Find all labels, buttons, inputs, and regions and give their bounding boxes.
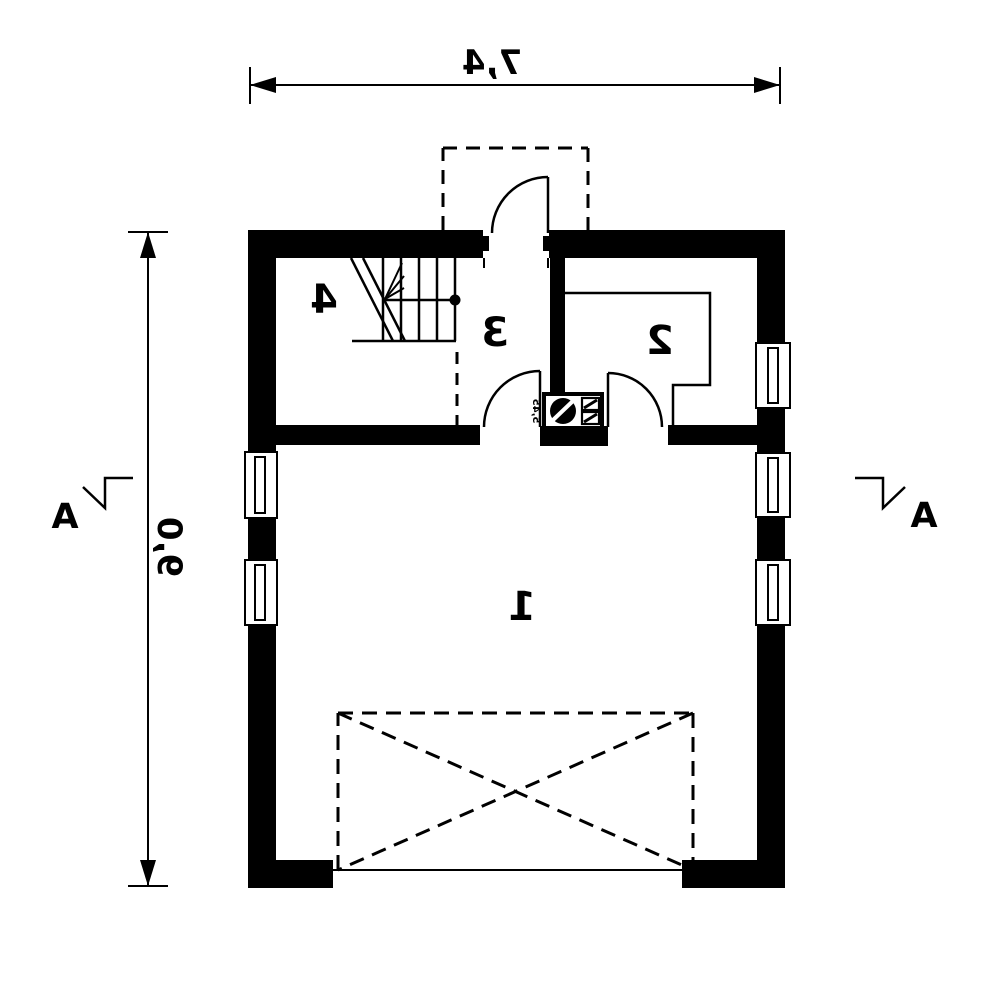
door-jamb	[483, 236, 489, 251]
porch-dashed-outline	[443, 148, 588, 230]
section-cut-mark	[855, 478, 905, 508]
stove-icon: 5,45	[530, 394, 608, 446]
room-label-2: 2	[646, 318, 674, 364]
dimension-arrow	[140, 860, 156, 886]
wall-bottom-left-segment	[248, 860, 333, 888]
left-dimension: 9,0	[128, 232, 189, 886]
entrance-door	[483, 177, 549, 268]
room-label-3: 3	[481, 310, 509, 356]
section-label-left: A	[51, 497, 78, 537]
floor-plan-canvas: 7,4 9,0 A A	[0, 0, 988, 1000]
room-label-1: 1	[508, 584, 536, 630]
room-label-4: 4	[310, 277, 338, 323]
section-marker-right: A	[855, 478, 938, 536]
wall-bottom-right-segment	[682, 860, 785, 888]
door-swing-arc	[608, 373, 662, 427]
top-dimension-label: 7,4	[462, 43, 522, 83]
window-symbol	[756, 343, 790, 408]
door-opening	[483, 228, 549, 262]
window-symbol	[756, 453, 790, 517]
interior-wall-horizontal-right	[668, 425, 763, 445]
room2-door	[608, 373, 662, 427]
section-cut-mark	[83, 478, 133, 508]
top-dimension: 7,4	[250, 43, 780, 104]
interior-wall-horizontal-left	[270, 425, 480, 445]
section-label-right: A	[910, 496, 937, 536]
window-symbol	[245, 452, 277, 518]
outer-walls	[248, 230, 785, 888]
newel-post-dot	[450, 295, 461, 306]
left-dimension-label: 9,0	[149, 517, 189, 577]
wall-top-left-segment	[248, 230, 483, 258]
door-swing-arc	[492, 177, 548, 233]
wall-top-right-segment	[549, 230, 785, 258]
stove-micro-label: 5,45	[530, 399, 541, 424]
terrace-dashed-outline	[333, 713, 693, 870]
floor-plan-page: 7,4 9,0 A A	[0, 0, 988, 1000]
section-marker-left: A	[51, 478, 133, 537]
window-symbol	[756, 560, 790, 625]
interior-wall-vertical	[550, 258, 565, 398]
door-jamb	[543, 236, 549, 251]
dimension-arrow	[250, 77, 276, 93]
dimension-arrow	[754, 77, 780, 93]
window-symbol	[245, 560, 277, 625]
stairs-symbol	[351, 258, 461, 341]
interior-walls	[270, 258, 763, 445]
dimension-arrow	[140, 232, 156, 258]
